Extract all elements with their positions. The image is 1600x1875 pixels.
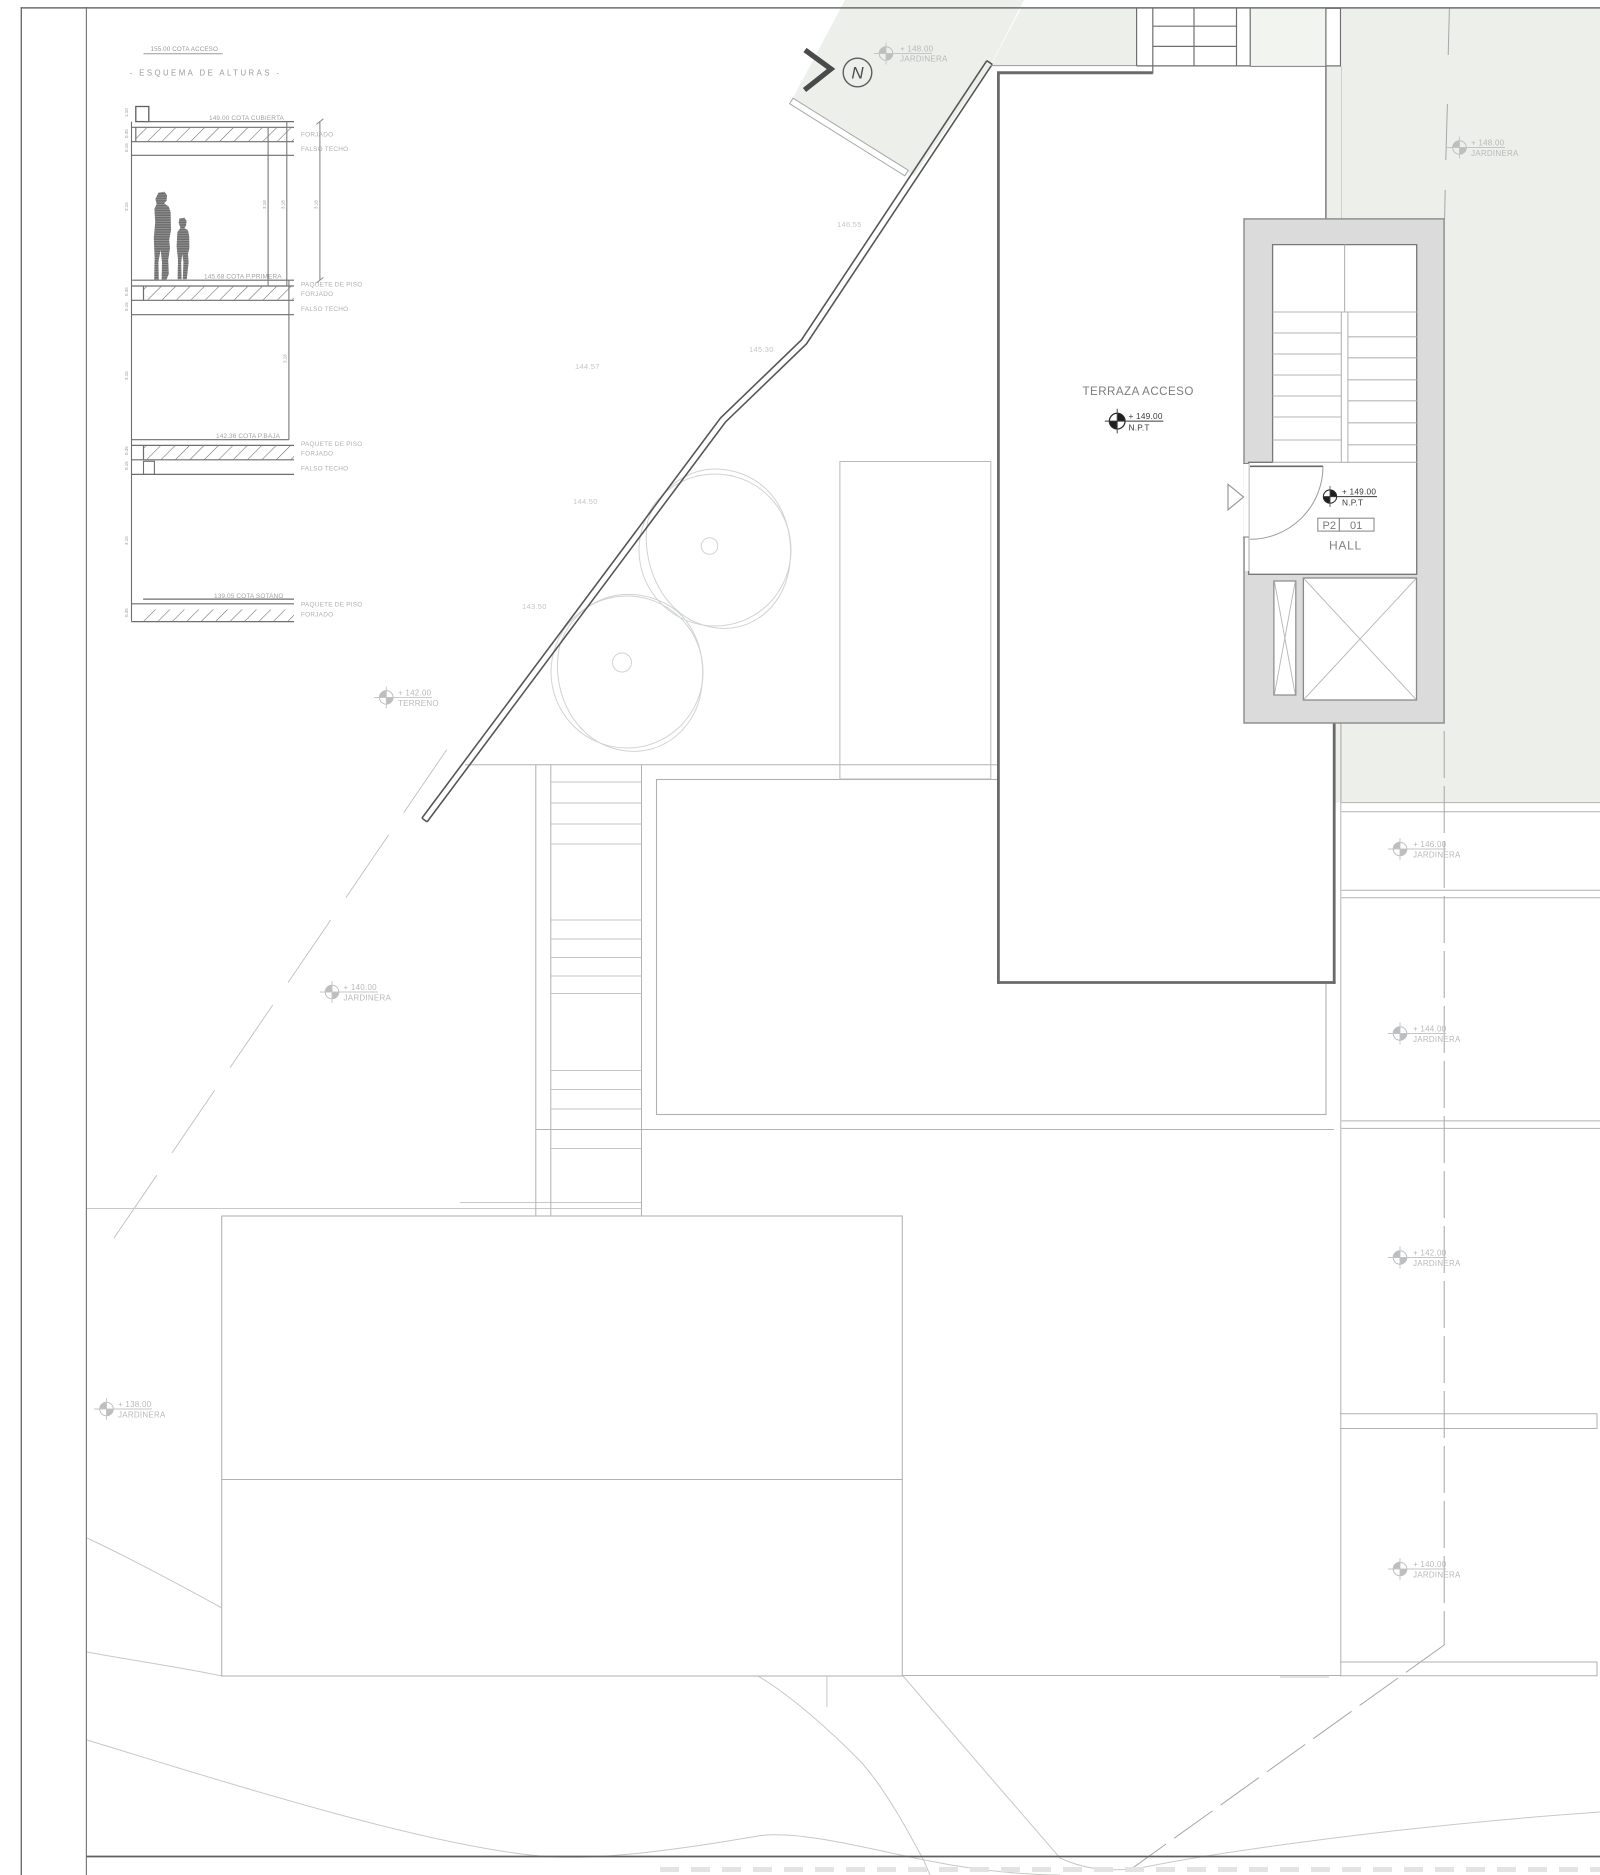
- svg-text:155.00 COTA ACCESO: 155.00 COTA ACCESO: [151, 46, 218, 53]
- svg-text:FALSO TECHO: FALSO TECHO: [301, 306, 348, 313]
- svg-text:N: N: [851, 64, 864, 83]
- svg-text:0.15: 0.15: [124, 461, 129, 470]
- svg-text:3.18: 3.18: [281, 200, 286, 209]
- svg-text:FORJADO: FORJADO: [301, 291, 333, 298]
- svg-text:N.P.T: N.P.T: [1129, 423, 1150, 433]
- svg-text:+ 140.00: + 140.00: [1413, 1560, 1447, 1569]
- svg-text:JARDINERA: JARDINERA: [1413, 1259, 1461, 1268]
- svg-text:JARDINERA: JARDINERA: [1413, 851, 1461, 860]
- svg-text:3.15: 3.15: [124, 371, 129, 380]
- svg-text:JARDINERA: JARDINERA: [344, 994, 392, 1003]
- svg-text:0.15: 0.15: [124, 302, 129, 311]
- svg-text:0.15: 0.15: [124, 143, 129, 152]
- svg-text:149.00 COTA CUBIERTA: 149.00 COTA CUBIERTA: [209, 115, 285, 122]
- svg-text:144.50: 144.50: [573, 497, 598, 506]
- svg-text:3.15: 3.15: [124, 536, 129, 545]
- svg-text:JARDINERA: JARDINERA: [118, 1411, 166, 1420]
- svg-text:0.35: 0.35: [124, 608, 129, 617]
- svg-text:1.10: 1.10: [124, 108, 129, 117]
- svg-text:144.57: 144.57: [575, 362, 600, 371]
- svg-text:N.P.T: N.P.T: [1342, 498, 1363, 508]
- svg-text:+ 144.00: + 144.00: [1413, 1025, 1447, 1034]
- svg-text:+ 140.00: + 140.00: [344, 983, 378, 992]
- svg-text:HALL: HALL: [1329, 539, 1362, 553]
- svg-text:JARDINERA: JARDINERA: [1413, 1571, 1461, 1580]
- svg-text:145.68 COTA P.PRIMERA: 145.68 COTA P.PRIMERA: [204, 274, 282, 281]
- svg-text:JARDINERA: JARDINERA: [1471, 149, 1519, 158]
- svg-text:+ 146.00: + 146.00: [1413, 840, 1447, 849]
- svg-text:+ 138.00: + 138.00: [118, 1400, 152, 1409]
- svg-text:FALSO TECHO: FALSO TECHO: [301, 146, 348, 153]
- svg-text:TERRENO: TERRENO: [398, 699, 439, 708]
- svg-text:PAQUETE DE PISO: PAQUETE DE PISO: [301, 441, 363, 448]
- svg-text:3.15: 3.15: [124, 202, 129, 211]
- svg-text:+ 148.00: + 148.00: [1471, 139, 1505, 148]
- svg-text:JARDINERA: JARDINERA: [900, 55, 948, 64]
- svg-text:P2: P2: [1323, 520, 1336, 532]
- svg-text:0.35: 0.35: [124, 446, 129, 455]
- svg-text:3.18: 3.18: [314, 200, 319, 209]
- svg-text:143.50: 143.50: [522, 602, 547, 611]
- svg-text:FORJADO: FORJADO: [301, 612, 333, 619]
- svg-text:- ESQUEMA DE ALTURAS -: - ESQUEMA DE ALTURAS -: [130, 69, 282, 78]
- svg-text:01: 01: [1350, 520, 1362, 532]
- svg-text:146.55: 146.55: [837, 220, 862, 229]
- svg-text:145.30: 145.30: [749, 345, 774, 354]
- svg-text:3.18: 3.18: [283, 354, 288, 363]
- svg-text:+ 148.00: + 148.00: [900, 45, 934, 54]
- svg-text:3.18: 3.18: [262, 200, 267, 209]
- svg-text:PAQUETE DE PISO: PAQUETE DE PISO: [301, 282, 363, 289]
- svg-text:FORJADO: FORJADO: [301, 132, 333, 139]
- svg-text:+ 149.00: + 149.00: [1342, 487, 1376, 497]
- svg-text:+ 142.00: + 142.00: [1413, 1249, 1447, 1258]
- svg-text:FORJADO: FORJADO: [301, 451, 333, 458]
- svg-text:0.35: 0.35: [124, 287, 129, 296]
- svg-text:+ 149.00: + 149.00: [1129, 411, 1163, 421]
- svg-text:TERRAZA ACCESO: TERRAZA ACCESO: [1083, 385, 1194, 398]
- svg-text:PAQUETE DE PISO: PAQUETE DE PISO: [301, 602, 363, 609]
- svg-text:FALSO TECHO: FALSO TECHO: [301, 466, 348, 473]
- svg-text:JARDINERA: JARDINERA: [1413, 1035, 1461, 1044]
- svg-text:0.35: 0.35: [124, 129, 129, 138]
- svg-text:+ 142.00: + 142.00: [398, 688, 432, 697]
